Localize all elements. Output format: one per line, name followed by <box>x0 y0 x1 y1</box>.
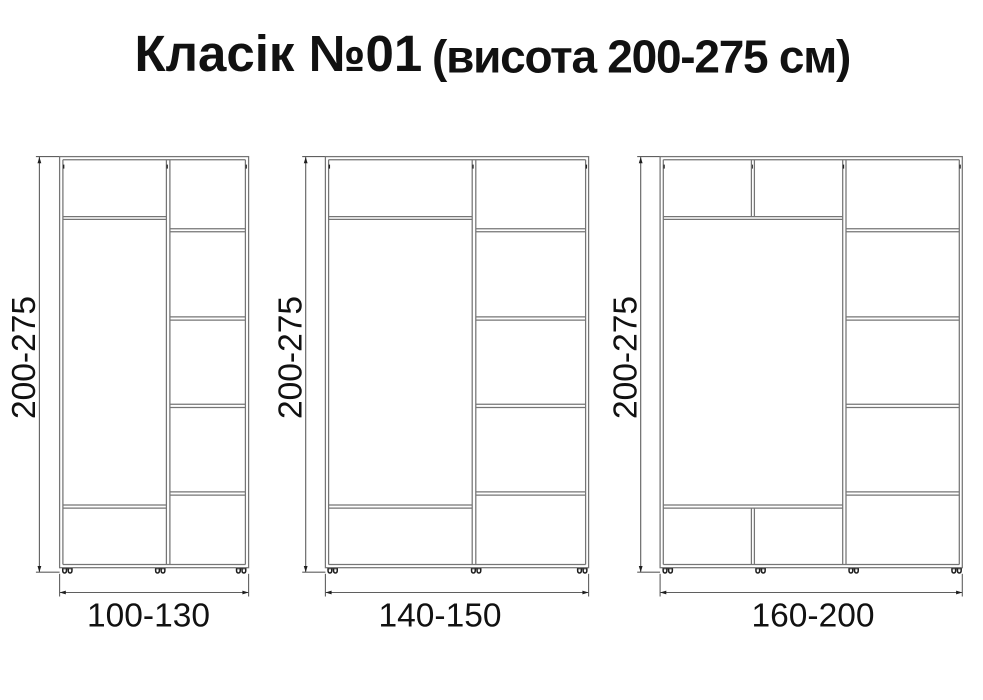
svg-text:Класік №01: Класік №01 <box>135 25 423 82</box>
svg-text:160-200: 160-200 <box>752 598 875 635</box>
svg-text:140-150: 140-150 <box>379 598 502 635</box>
svg-text:100-130: 100-130 <box>87 598 210 635</box>
svg-text:200-275: 200-275 <box>273 296 310 419</box>
svg-text:200-275: 200-275 <box>6 296 43 419</box>
svg-text:(висота 200-275 см): (висота 200-275 см) <box>432 30 850 82</box>
svg-text:200-275: 200-275 <box>608 296 645 419</box>
